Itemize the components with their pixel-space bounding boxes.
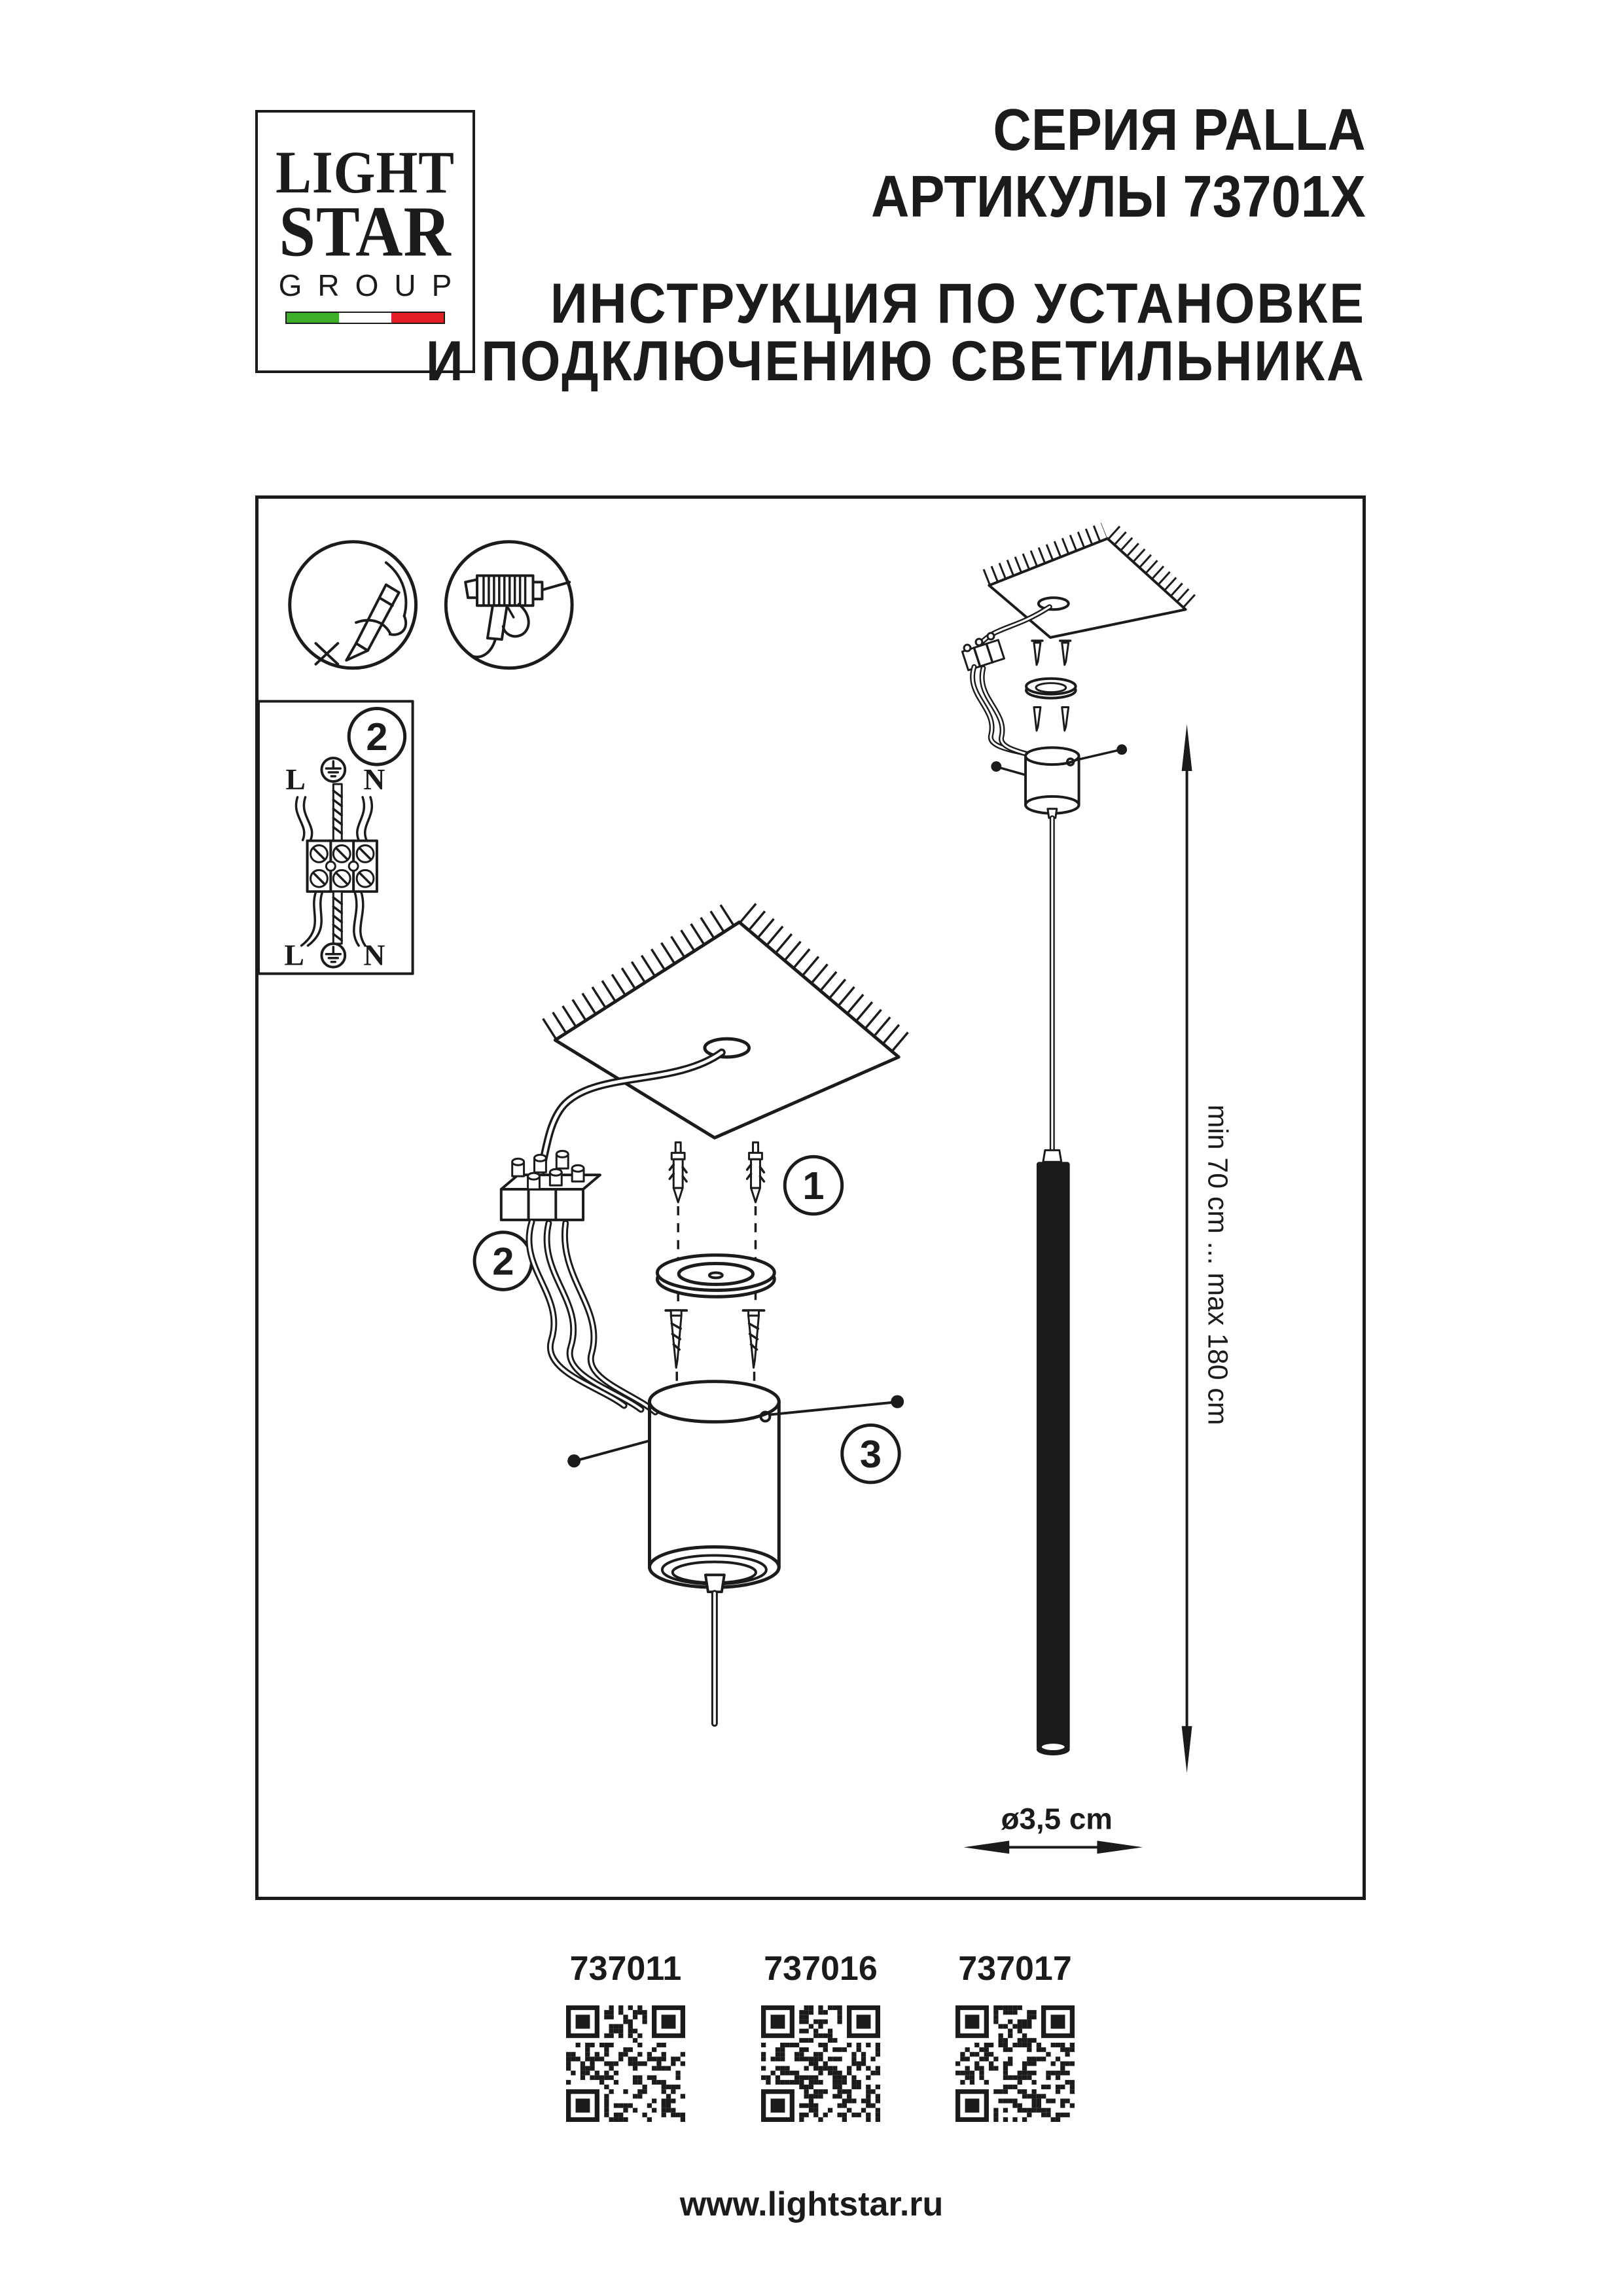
ground-wire-bottom bbox=[333, 891, 342, 944]
step-1-number: 1 bbox=[802, 1164, 824, 1208]
screws-assembled bbox=[1032, 641, 1071, 665]
qr-code-737011 bbox=[566, 2005, 685, 2122]
canopy-wires bbox=[529, 1222, 655, 1412]
mark-with-pencil-icon bbox=[290, 542, 416, 668]
label-neutral-top: N bbox=[363, 762, 385, 796]
header-title: СЕРИЯ PALLA АРТИКУЛЫ 73701X bbox=[871, 97, 1366, 230]
assembled-view: min 70 cm ... max 180 cm ø3,5 cm bbox=[959, 531, 1233, 1854]
italian-flag-bar bbox=[285, 312, 445, 324]
qr-item-737011: 737011 bbox=[566, 1950, 685, 2122]
label-line-bottom: L bbox=[284, 939, 304, 972]
step-3-badge: 3 bbox=[842, 1425, 899, 1482]
diameter-label: ø3,5 cm bbox=[1001, 1802, 1113, 1835]
qr-item-737016: 737016 bbox=[761, 1950, 880, 2122]
wall-anchors bbox=[669, 1142, 764, 1202]
diagram-frame: 2 L N bbox=[255, 495, 1366, 1900]
article-number: 737016 bbox=[761, 1950, 880, 1987]
instruction-sheet: LIGHT STAR GROUP СЕРИЯ PALLA АРТИКУЛЫ 73… bbox=[0, 0, 1623, 2296]
terminal-block-exploded bbox=[501, 1151, 600, 1220]
flag-white bbox=[339, 313, 391, 323]
mounting-ring bbox=[657, 1255, 774, 1297]
articles-title: АРТИКУЛЫ 73701X bbox=[871, 164, 1366, 230]
qr-item-737017: 737017 bbox=[955, 1950, 1075, 2122]
flag-green bbox=[287, 313, 339, 323]
instruction-line2: И ПОДКЛЮЧЕНИЮ СВЕТИЛЬНИКА bbox=[426, 332, 1366, 390]
terminal-block bbox=[308, 841, 377, 892]
article-number: 737017 bbox=[955, 1950, 1075, 1987]
ceiling-hole bbox=[705, 1039, 749, 1057]
canopy-assembled bbox=[991, 744, 1127, 817]
label-line-top: L bbox=[285, 762, 305, 796]
instruction-line1: ИНСТРУКЦИЯ ПО УСТАНОВКЕ bbox=[426, 275, 1366, 332]
step-2-badge: 2 bbox=[349, 708, 404, 764]
ground-wire-top bbox=[333, 784, 342, 841]
instruction-title: ИНСТРУКЦИЯ ПО УСТАНОВКЕ И ПОДКЛЮЧЕНИЮ СВ… bbox=[426, 275, 1366, 390]
height-dimension: min 70 cm ... max 180 cm bbox=[1182, 724, 1234, 1772]
height-range-label: min 70 cm ... max 180 cm bbox=[1202, 1105, 1233, 1426]
logo-word-star: STAR bbox=[258, 197, 473, 266]
installation-diagram: 2 L N bbox=[259, 499, 1363, 1897]
qr-code-737016 bbox=[761, 2005, 880, 2122]
label-neutral-bottom: N bbox=[363, 939, 385, 972]
diameter-dimension: ø3,5 cm bbox=[964, 1802, 1143, 1854]
ceiling-slab bbox=[555, 922, 899, 1138]
step-2-badge-exploded: 2 bbox=[474, 1232, 531, 1290]
drill-icon bbox=[446, 542, 572, 668]
terminal-block-assembled bbox=[959, 632, 1004, 670]
series-title: СЕРИЯ PALLA bbox=[871, 97, 1366, 164]
exploded-view: 2 bbox=[474, 912, 906, 1723]
website-url: www.lightstar.ru bbox=[0, 2185, 1623, 2224]
pendant-tube bbox=[1037, 1150, 1070, 1755]
wiring-diagram-box: 2 L N bbox=[259, 702, 413, 974]
step-3-number: 3 bbox=[860, 1432, 882, 1476]
qr-code-737017 bbox=[955, 2005, 1075, 2122]
step-2-number: 2 bbox=[366, 715, 387, 759]
step-1-badge: 1 bbox=[785, 1157, 842, 1214]
canopy-exploded bbox=[649, 1382, 779, 1592]
article-number: 737011 bbox=[566, 1950, 685, 1987]
step-2-number-exploded: 2 bbox=[492, 1239, 514, 1283]
mounting-screws bbox=[666, 1310, 764, 1368]
mounting-ring-assembled bbox=[1026, 679, 1076, 698]
